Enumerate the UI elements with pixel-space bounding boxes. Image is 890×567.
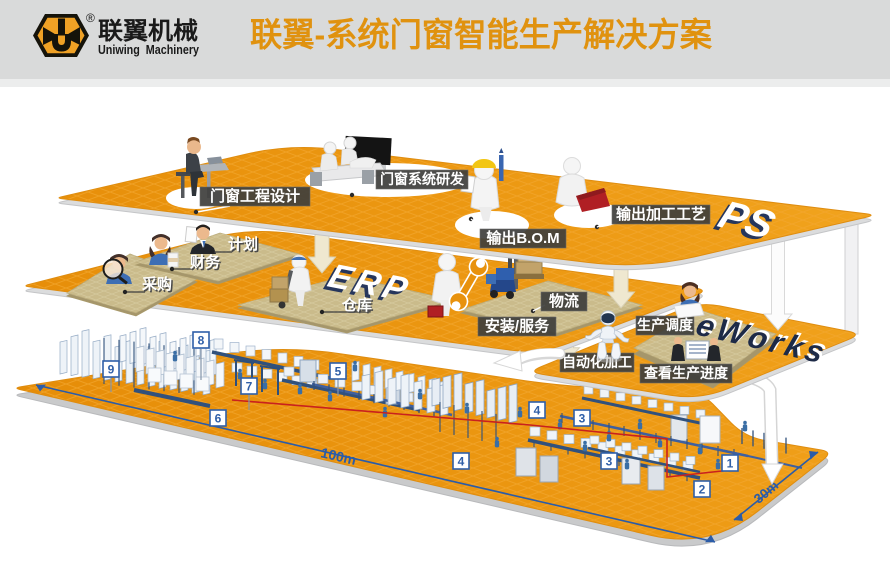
svg-text:5: 5: [335, 365, 342, 379]
svg-text:采购: 采购: [141, 275, 172, 293]
svg-text:仓库: 仓库: [341, 296, 372, 314]
svg-text:查看生产进度: 查看生产进度: [644, 365, 729, 381]
svg-text:门窗工程设计: 门窗工程设计: [210, 187, 300, 205]
svg-text:财务: 财务: [190, 253, 221, 271]
svg-text:输出B.O.M: 输出B.O.M: [486, 229, 559, 247]
svg-text:9: 9: [108, 363, 115, 377]
svg-text:1: 1: [727, 457, 734, 471]
svg-text:生产调度: 生产调度: [637, 317, 694, 333]
svg-text:计划: 计划: [228, 235, 258, 253]
svg-text:4: 4: [458, 455, 465, 469]
svg-text:自动化加工: 自动化加工: [562, 354, 632, 370]
svg-text:Uniwing Machinery: Uniwing Machinery: [98, 42, 200, 57]
svg-text:输出加工工艺: 输出加工工艺: [616, 205, 706, 223]
svg-text:8: 8: [198, 334, 205, 348]
svg-text:7: 7: [246, 380, 253, 394]
svg-text:3: 3: [606, 455, 613, 469]
svg-text:2: 2: [699, 483, 706, 497]
svg-text:4: 4: [534, 404, 541, 418]
svg-text:安装/服务: 安装/服务: [485, 317, 550, 335]
svg-text:6: 6: [215, 412, 222, 426]
svg-text:门窗系统研发: 门窗系统研发: [380, 171, 465, 187]
svg-text:®: ®: [86, 11, 95, 25]
svg-text:3: 3: [579, 412, 586, 426]
svg-text:联翼-系统门窗智能生产解决方案: 联翼-系统门窗智能生产解决方案: [250, 16, 713, 53]
svg-text:物流: 物流: [549, 292, 579, 310]
svg-text:联翼机械: 联翼机械: [98, 18, 198, 45]
